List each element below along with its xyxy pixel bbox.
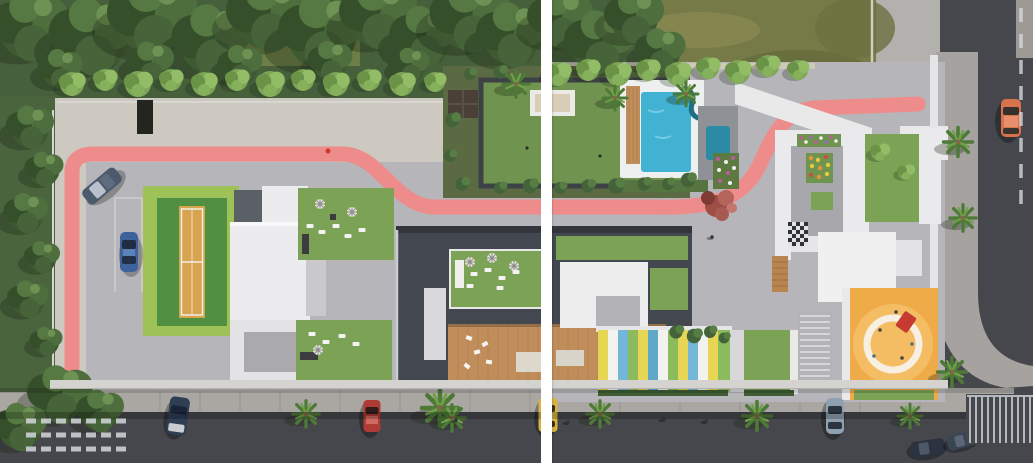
lounger	[471, 272, 478, 276]
parapet-band	[50, 380, 948, 389]
bird-on-lawn	[598, 154, 601, 157]
umbrella	[487, 253, 497, 263]
runner-red	[326, 149, 331, 154]
car-orange	[995, 99, 1021, 143]
parking-bays-bottom-right	[966, 394, 1033, 444]
wood-strip-terrace	[772, 256, 788, 292]
flower-bed-square	[806, 153, 833, 183]
sports-court	[143, 186, 239, 336]
umbrella	[509, 261, 519, 271]
site-plan-render	[0, 0, 1033, 463]
top-right-sidewalk	[1016, 0, 1033, 58]
flower-bed-tulips	[797, 134, 841, 147]
right-lawn-terrace	[865, 128, 941, 224]
rooftop-garden-lower	[296, 320, 392, 382]
rooftop-garden-upper	[298, 188, 394, 260]
bird-on-lawn	[525, 146, 528, 149]
deck-table	[556, 350, 584, 366]
roof-walkway	[424, 288, 446, 360]
image-divider-line	[541, 0, 554, 463]
lounger	[513, 270, 520, 274]
umbrella	[465, 257, 475, 267]
road-edge-shadow	[0, 412, 1014, 419]
lounger	[467, 284, 474, 288]
lounger	[485, 268, 492, 272]
wall-gate	[137, 100, 153, 134]
wall-shadow	[0, 388, 1014, 393]
checkerboard-terrace	[788, 222, 808, 246]
lounger	[499, 276, 506, 280]
lounger	[497, 286, 504, 290]
flower-bed-magenta	[713, 153, 739, 189]
rooftop-lounge-terrace	[450, 250, 546, 308]
